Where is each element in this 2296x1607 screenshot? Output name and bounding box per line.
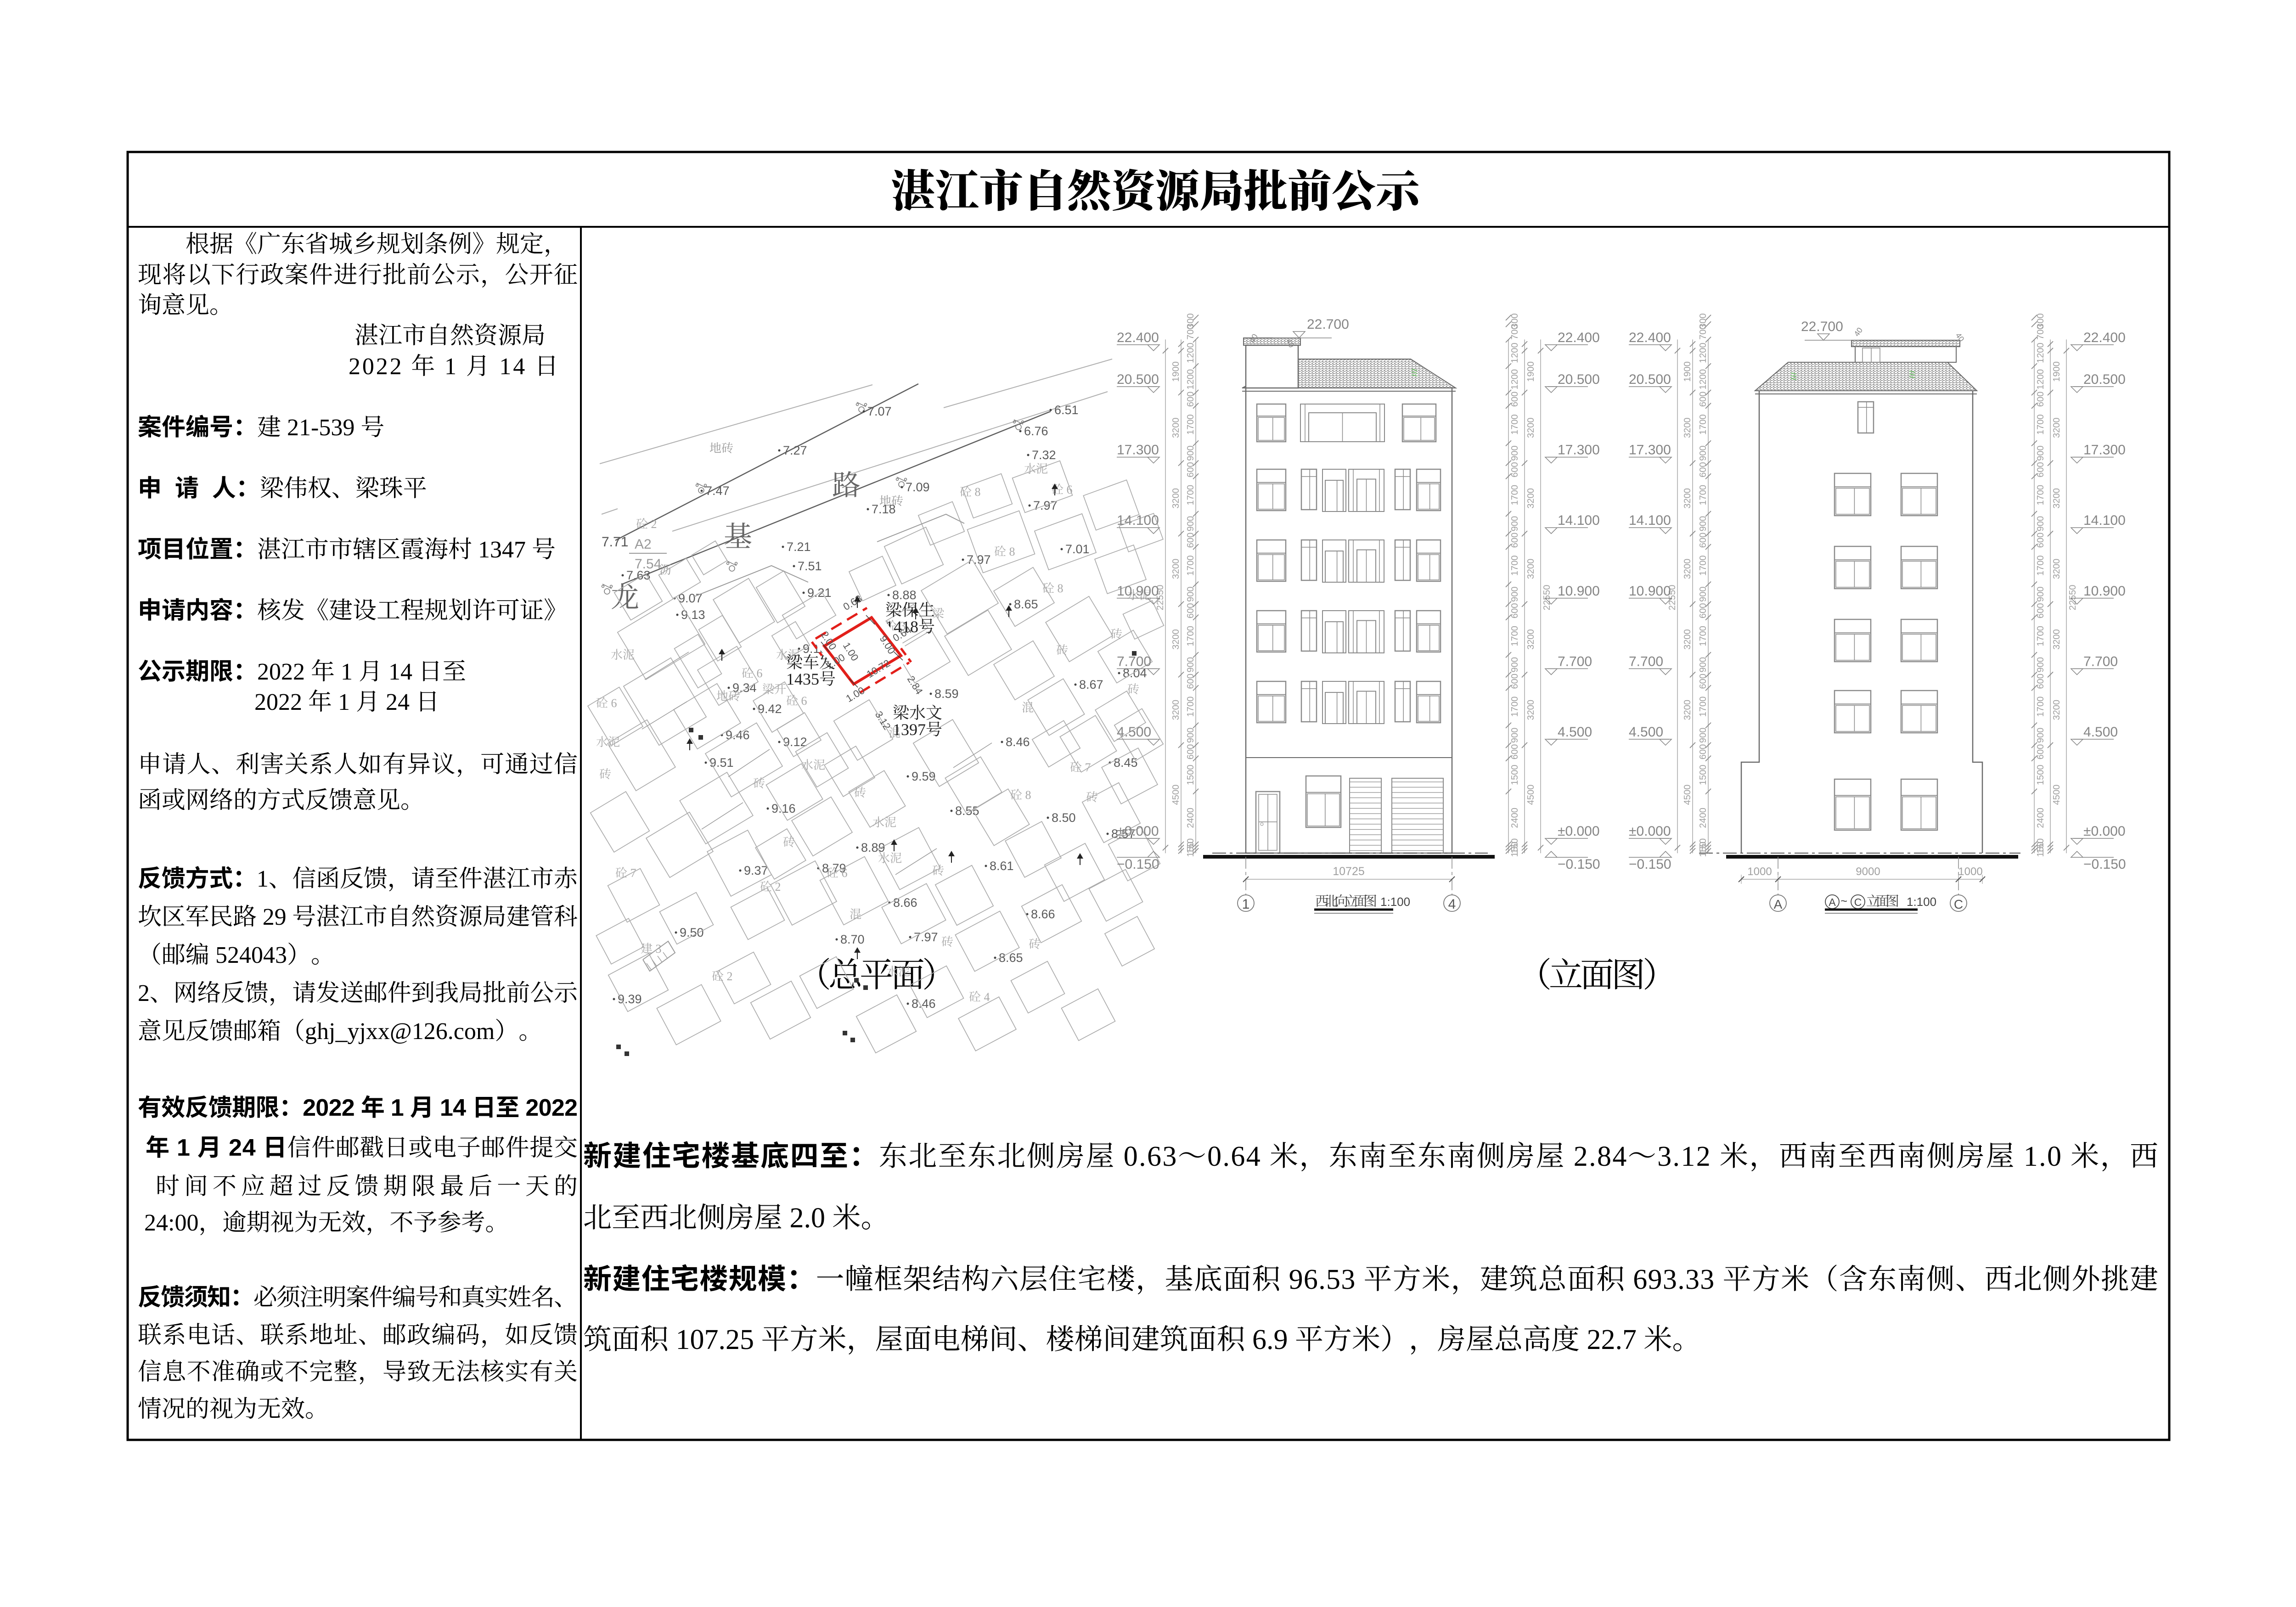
svg-text:17.300: 17.300 [1629,443,1671,458]
svg-text:14.100: 14.100 [1117,513,1159,528]
svg-text:1700: 1700 [1186,414,1196,435]
svg-text:900: 900 [1186,728,1196,743]
svg-text:900: 900 [1510,587,1520,602]
svg-text:3200: 3200 [1526,559,1536,579]
svg-text:6: 6 [1067,483,1073,496]
svg-text:900: 900 [1510,516,1520,531]
svg-text:3200: 3200 [1526,418,1536,438]
svg-text:600: 600 [1698,603,1708,618]
svg-text:900: 900 [1698,728,1708,743]
svg-text:0: 0 [362,354,374,380]
svg-text:14: 14 [388,659,412,685]
svg-text:22.400: 22.400 [1629,330,1671,345]
svg-text:900: 900 [1510,657,1520,672]
svg-text:8.65: 8.65 [1014,597,1038,611]
svg-text:1200: 1200 [1698,369,1708,390]
svg-text:1700: 1700 [1186,626,1196,646]
svg-text:22.700: 22.700 [1307,317,1349,332]
svg-text:1:100: 1:100 [1907,895,1936,909]
svg-text:3: 3 [1341,1264,1355,1295]
svg-text:24: 24 [386,689,410,715]
svg-text:21-539: 21-539 [287,415,355,441]
svg-text:1397: 1397 [893,720,926,739]
svg-text:1700: 1700 [1698,697,1708,717]
svg-text:8: 8 [1058,582,1064,595]
svg-text:600: 600 [1186,603,1196,618]
svg-text:1000: 1000 [1958,865,1982,878]
svg-text:2.0: 2.0 [790,1202,826,1234]
svg-text:10.900: 10.900 [1629,584,1671,599]
svg-text:1500: 1500 [2036,765,2046,786]
svg-text:17.300: 17.300 [2083,443,2126,458]
svg-text:7: 7 [1085,761,1091,774]
svg-text:7.97: 7.97 [967,553,991,567]
svg-text:14.100: 14.100 [1629,513,1671,528]
svg-text:0: 0 [2047,1141,2061,1172]
svg-text:1700: 1700 [1186,485,1196,506]
svg-text:600: 600 [2036,744,2046,759]
svg-text:1: 1 [391,1095,404,1121]
svg-text:0: 0 [539,1095,552,1121]
svg-text:6: 6 [1304,1264,1318,1295]
svg-text:8.66: 8.66 [893,896,917,910]
svg-text:2: 2 [329,1095,342,1121]
svg-text:6: 6 [757,667,763,680]
svg-text:9: 9 [1289,1264,1303,1295]
svg-text:9: 9 [1648,1264,1662,1295]
svg-text:7.700: 7.700 [1558,654,1592,669]
svg-text:6.51: 6.51 [1054,403,1079,417]
svg-text:14.100: 14.100 [2083,513,2126,528]
svg-text:22550: 22550 [1542,585,1552,611]
svg-text:2400: 2400 [1698,808,1708,828]
svg-text:20.500: 20.500 [2083,372,2126,387]
svg-text:1200: 1200 [1510,369,1520,390]
svg-text:−0.150: −0.150 [1629,857,1671,872]
svg-text:9.37: 9.37 [744,864,768,877]
svg-text:1900: 1900 [1683,361,1693,382]
svg-text:7.21: 7.21 [787,540,811,554]
svg-text:4500: 4500 [1171,785,1181,805]
svg-text:1: 1 [341,659,353,685]
svg-text:2: 2 [263,904,275,930]
svg-text:3200: 3200 [1683,700,1693,720]
svg-text:.: . [2039,1141,2046,1172]
svg-text:6: 6 [801,694,807,708]
svg-text:1: 1 [1242,897,1250,912]
svg-text:10725: 10725 [1333,865,1365,878]
svg-text:2400: 2400 [2036,808,2046,828]
svg-text:10.900: 10.900 [1117,584,1159,599]
svg-text:1: 1 [257,866,269,892]
svg-text:.: . [1673,1141,1680,1172]
svg-text:3200: 3200 [1683,488,1693,509]
svg-text:6: 6 [1633,1264,1647,1295]
svg-text:7.01: 7.01 [1065,542,1090,556]
svg-text:±0.000: ±0.000 [1117,824,1159,839]
svg-text:8.65: 8.65 [999,951,1023,965]
svg-text:1435: 1435 [786,670,819,688]
svg-text:7.71: 7.71 [602,534,628,550]
svg-text:1700: 1700 [1186,697,1196,717]
svg-text:A: A [1774,897,1783,911]
svg-text:4.500: 4.500 [1117,725,1151,740]
svg-text:600: 600 [1510,392,1520,407]
svg-text:3: 3 [1685,1264,1699,1295]
svg-text:4: 4 [513,354,525,380]
svg-text:600: 600 [1186,744,1196,759]
svg-text:600: 600 [2036,392,2046,407]
svg-text:300: 300 [1186,313,1196,328]
svg-text:3: 3 [1663,1264,1677,1295]
svg-text:A2: A2 [635,537,652,552]
svg-text:1700: 1700 [2036,414,2046,435]
svg-text:1: 1 [177,1135,190,1161]
svg-text:22.400: 22.400 [1558,330,1600,345]
svg-text:600: 600 [1698,674,1708,689]
svg-text:3200: 3200 [1526,629,1536,650]
svg-text:2: 2 [229,1135,242,1161]
svg-text:C: C [1954,897,1963,911]
svg-text:1700: 1700 [1698,626,1708,646]
svg-text:22550: 22550 [2068,585,2078,611]
svg-text:−0.150: −0.150 [2083,857,2126,872]
svg-text:~: ~ [1840,894,1847,908]
svg-text:3200: 3200 [2052,488,2062,509]
svg-text:150: 150 [1186,838,1196,854]
svg-text:8: 8 [1009,545,1015,558]
svg-text:3200: 3200 [1171,629,1181,650]
svg-text:1700: 1700 [1186,556,1196,576]
svg-text:900: 900 [2036,516,2046,531]
svg-text:300: 300 [1698,313,1708,328]
svg-text:4: 4 [1612,1141,1626,1172]
svg-text:.: . [1589,1141,1596,1172]
svg-text:1200: 1200 [1186,369,1196,390]
svg-text:C: C [1854,896,1862,908]
svg-text:6: 6 [1231,1141,1245,1172]
svg-text:1200: 1200 [2036,369,2046,390]
svg-text:8.50: 8.50 [1052,811,1076,825]
svg-text:3: 3 [1700,1264,1714,1295]
svg-text:900: 900 [1510,445,1520,461]
svg-text:2400: 2400 [1186,808,1196,828]
svg-text:600: 600 [1186,533,1196,548]
svg-text:1: 1 [440,1095,453,1121]
svg-text:10.900: 10.900 [2083,584,2126,599]
svg-text:600: 600 [1698,462,1708,477]
svg-text:17.300: 17.300 [1117,443,1159,458]
svg-text:3200: 3200 [1683,418,1693,438]
svg-text:2: 2 [1574,1141,1588,1172]
svg-text:600: 600 [1186,674,1196,689]
svg-text:4500: 4500 [1683,785,1693,805]
svg-text:3200: 3200 [1171,418,1181,438]
svg-text:2: 2 [390,354,402,380]
svg-text:4: 4 [1246,1141,1261,1172]
svg-text:7.32: 7.32 [1032,448,1056,462]
svg-text:900: 900 [1698,657,1708,672]
svg-text:1: 1 [1681,1141,1695,1172]
svg-text:1200: 1200 [1186,343,1196,363]
svg-text:9000: 9000 [1856,865,1880,878]
svg-text:1700: 1700 [1510,697,1520,717]
svg-text:300: 300 [2036,313,2046,328]
svg-text:150: 150 [1698,838,1708,854]
svg-text:6: 6 [842,866,848,880]
svg-text:6: 6 [1147,1141,1161,1172]
svg-text:22.7: 22.7 [1587,1324,1637,1355]
svg-text:3200: 3200 [1171,488,1181,509]
svg-text:8.59: 8.59 [934,687,959,701]
svg-text:8: 8 [975,485,981,499]
svg-text:3200: 3200 [1171,700,1181,720]
svg-text:600: 600 [1698,392,1708,407]
svg-text:600: 600 [2036,533,2046,548]
svg-text:0: 0 [1207,1141,1221,1172]
svg-text:900: 900 [1186,516,1196,531]
svg-text:3: 3 [1162,1141,1176,1172]
svg-text:1347: 1347 [478,537,526,563]
svg-text:7.27: 7.27 [783,444,807,457]
svg-text:A: A [1829,896,1836,908]
svg-text:20.500: 20.500 [1558,372,1600,387]
svg-text:150: 150 [2036,838,2046,854]
svg-text:600: 600 [1510,744,1520,759]
svg-text:.: . [1318,1264,1326,1295]
svg-text:2: 2 [727,970,733,983]
svg-text:900: 900 [2036,445,2046,461]
svg-text:600: 600 [2036,603,2046,618]
svg-text:±0.000: ±0.000 [2083,824,2126,839]
svg-text:3200: 3200 [1526,488,1536,509]
svg-text:3200: 3200 [2052,418,2062,438]
svg-text:2: 2 [525,1095,539,1121]
svg-text:600: 600 [1698,533,1708,548]
svg-text:1700: 1700 [1698,485,1708,506]
svg-text:1500: 1500 [1186,765,1196,786]
svg-text:10.900: 10.900 [1558,584,1600,599]
svg-text:1: 1 [445,354,456,380]
svg-text:7.18: 7.18 [872,502,896,516]
svg-text:600: 600 [1510,533,1520,548]
svg-text:1700: 1700 [1510,485,1520,506]
svg-text:4: 4 [984,990,990,1004]
svg-text:6.9: 6.9 [1252,1324,1288,1355]
svg-text:2: 2 [551,1095,565,1121]
svg-text:17.300: 17.300 [1558,443,1600,458]
svg-text:6: 6 [611,697,617,710]
svg-text:150: 150 [1510,838,1520,854]
svg-text:1500: 1500 [1698,765,1708,786]
svg-text:4: 4 [1448,897,1456,912]
svg-text:4: 4 [453,1095,466,1121]
svg-text:900: 900 [1698,516,1708,531]
svg-text:900: 900 [1186,657,1196,672]
svg-text:600: 600 [1186,462,1196,477]
svg-text:1700: 1700 [1698,414,1708,435]
svg-text:20.500: 20.500 [1117,372,1159,387]
svg-text:4: 4 [242,1135,256,1161]
svg-text:1500: 1500 [1510,765,1520,786]
svg-text:ghj_yjxx@126.com: ghj_yjxx@126.com [305,1018,495,1045]
svg-text:8.61: 8.61 [990,859,1014,873]
svg-text:1700: 1700 [1698,556,1708,576]
svg-text:1700: 1700 [2036,697,2046,717]
svg-text:−0.150: −0.150 [1558,857,1600,872]
svg-text:900: 900 [2036,657,2046,672]
svg-text:2: 2 [342,1095,355,1121]
svg-text:7.07: 7.07 [867,405,892,418]
svg-text:600: 600 [1510,603,1520,618]
svg-text:4.500: 4.500 [1629,725,1663,740]
svg-text:2022: 2022 [257,659,305,685]
svg-text:4500: 4500 [2052,785,2062,805]
svg-text:20.500: 20.500 [1629,372,1671,387]
svg-text:8.88: 8.88 [892,588,917,602]
svg-text:9.50: 9.50 [680,926,704,939]
svg-text:600: 600 [2036,674,2046,689]
svg-text:7.51: 7.51 [798,559,822,573]
svg-text:.: . [1223,1141,1230,1172]
svg-text:8.66: 8.66 [1031,907,1055,921]
svg-text:0: 0 [315,1095,329,1121]
svg-text:1900: 1900 [1171,361,1181,382]
svg-text:±0.000: ±0.000 [1629,824,1671,839]
svg-text:4.500: 4.500 [2083,725,2118,740]
svg-text:8: 8 [1025,788,1031,802]
svg-text:2: 2 [1696,1141,1711,1172]
svg-text:1000: 1000 [1747,865,1772,878]
svg-text:−0.150: −0.150 [1117,857,1159,872]
svg-text:1700: 1700 [1510,414,1520,435]
svg-text:7.700: 7.700 [1117,654,1151,669]
svg-text:2: 2 [564,1095,578,1121]
svg-text:24:00: 24:00 [144,1210,198,1236]
svg-text:14.100: 14.100 [1558,513,1600,528]
svg-text:3200: 3200 [1526,700,1536,720]
svg-text:22.400: 22.400 [2083,330,2126,345]
svg-text:900: 900 [1698,587,1708,602]
svg-text:1900: 1900 [1526,361,1536,382]
svg-text:7.97: 7.97 [914,930,938,944]
svg-text:3200: 3200 [1683,629,1693,650]
svg-text:2: 2 [775,880,781,893]
svg-text:3200: 3200 [2052,629,2062,650]
svg-text:1700: 1700 [1510,626,1520,646]
svg-text:4.500: 4.500 [1558,725,1592,740]
svg-text:8.46: 8.46 [1006,735,1030,749]
svg-text:2: 2 [349,354,360,380]
svg-text:2: 2 [651,517,657,531]
svg-text:1200: 1200 [1510,343,1520,363]
svg-text:±0.000: ±0.000 [1558,824,1600,839]
svg-text:6.76: 6.76 [1024,424,1048,438]
svg-text:600: 600 [2036,462,2046,477]
svg-text:9.51: 9.51 [709,756,734,770]
svg-text:2: 2 [376,354,388,380]
svg-text:1: 1 [499,354,511,380]
svg-text:1: 1 [338,689,350,715]
svg-text:1:100: 1:100 [1380,895,1410,909]
svg-text:22.700: 22.700 [1801,319,1843,334]
svg-text:300: 300 [1510,313,1520,328]
svg-text:5: 5 [1326,1264,1340,1295]
svg-text:8: 8 [1597,1141,1611,1172]
svg-text:7.09: 7.09 [906,480,930,494]
svg-text:3: 3 [1657,1141,1671,1172]
svg-text:1700: 1700 [2036,626,2046,646]
svg-text:7.47: 7.47 [705,484,730,498]
svg-text:9.59: 9.59 [912,770,936,783]
svg-text:8.46: 8.46 [912,997,936,1011]
svg-text:107.25: 107.25 [676,1324,754,1355]
svg-text:2: 2 [138,980,150,1006]
svg-text:524043: 524043 [215,942,287,968]
svg-text:.: . [1139,1141,1146,1172]
svg-text:2022: 2022 [254,689,302,715]
svg-text:8.67: 8.67 [1079,678,1103,691]
svg-text:1: 1 [2024,1141,2038,1172]
svg-text:900: 900 [1698,445,1708,461]
svg-text:2400: 2400 [1510,808,1520,828]
svg-text:900: 900 [2036,587,2046,602]
svg-text:900: 900 [1510,728,1520,743]
svg-text:1200: 1200 [1698,343,1708,363]
svg-text:3200: 3200 [1171,559,1181,579]
svg-text:8.70: 8.70 [840,933,865,946]
svg-text:4500: 4500 [1526,785,1536,805]
svg-text:3200: 3200 [1683,559,1693,579]
svg-text:600: 600 [1698,744,1708,759]
svg-text:9: 9 [275,904,287,930]
svg-text:7.700: 7.700 [2083,654,2118,669]
svg-text:1900: 1900 [2052,361,2062,382]
svg-text:600: 600 [1186,392,1196,407]
svg-text:600: 600 [1510,674,1520,689]
svg-text:1700: 1700 [1510,556,1520,576]
svg-text:1700: 1700 [2036,556,2046,576]
svg-text:0: 0 [1124,1141,1138,1172]
svg-text:3200: 3200 [2052,559,2062,579]
svg-text:22.400: 22.400 [1117,330,1159,345]
svg-text:7.700: 7.700 [1629,654,1663,669]
svg-text:3200: 3200 [2052,700,2062,720]
svg-text:900: 900 [1186,445,1196,461]
svg-text:1700: 1700 [2036,485,2046,506]
svg-text:.: . [1677,1264,1685,1295]
svg-text:600: 600 [1510,462,1520,477]
svg-text:1200: 1200 [2036,343,2046,363]
svg-text:2: 2 [303,1095,316,1121]
svg-text:900: 900 [1186,587,1196,602]
svg-text:7: 7 [630,866,636,880]
svg-text:900: 900 [2036,728,2046,743]
